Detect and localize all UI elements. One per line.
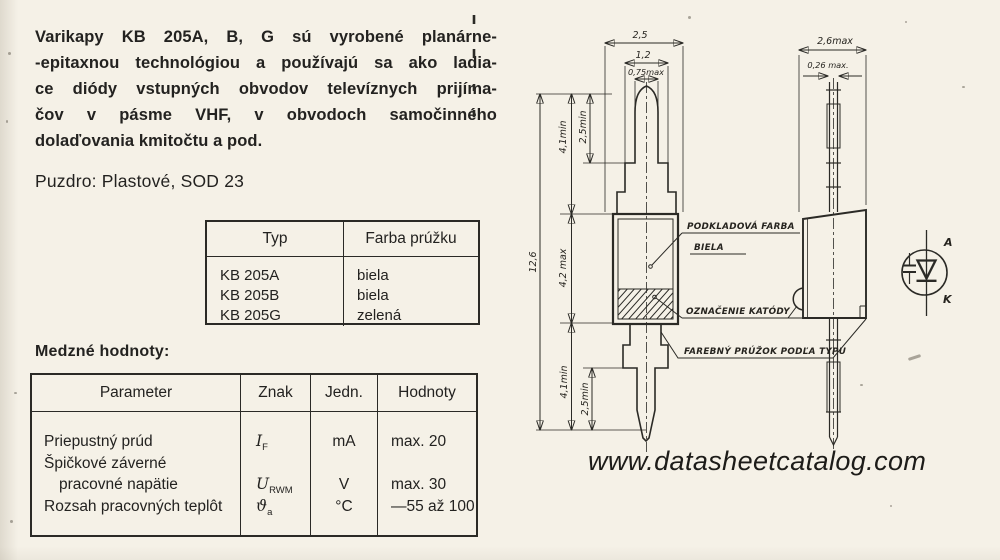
table-cell: mA [311, 431, 377, 453]
table-cell: °C [311, 496, 377, 518]
scan-speck [890, 505, 892, 507]
dim-label: 4,1min [558, 120, 569, 153]
table-cell: biela [344, 266, 478, 286]
dim-label: 4,1min [559, 365, 570, 398]
capacitor-plates [903, 253, 916, 284]
callout-cathode-mark: OZNAČENIE KATÓDY [686, 305, 791, 317]
scan-speck [688, 16, 691, 19]
limits-header-parameter: Parameter [32, 375, 240, 412]
dim-label: 1,2 [635, 50, 650, 61]
scan-speck [6, 120, 8, 123]
table-cell: zelená [344, 306, 478, 326]
table-cell: Rozsah pracovných teplôt [32, 496, 240, 518]
type-table-farba-column: biela biela zelená [343, 257, 478, 326]
symbol-letter: U [256, 475, 269, 493]
scan-speck [905, 21, 907, 23]
scan-speck [14, 392, 17, 394]
limits-parameter-column: Priepustný prúd Špičkové záverné pracovn… [32, 412, 240, 535]
table-cell [241, 453, 310, 475]
symbol-letter: ϑ [256, 497, 267, 515]
limits-header-znak: Znak [240, 375, 310, 412]
limits-table: Parameter Znak Jedn. Hodnoty Priepustný … [30, 373, 478, 537]
table-cell: IF [241, 431, 310, 453]
table-cell: ϑa [241, 496, 310, 518]
table-cell: Špičkové záverné [32, 453, 240, 475]
package-drawings: 2,5 1,2 0,75max 12,6 4,1min 2,5min 4,2 m… [460, 0, 1000, 520]
symbol-subscript: a [267, 507, 272, 518]
scan-speck [8, 52, 11, 55]
cathode-nose [793, 288, 803, 310]
watermark: www.datasheetcatalog.com [588, 446, 926, 477]
intro-line: čov v pásme VHF, v obvodoch samočinného [35, 102, 497, 128]
scan-speck [860, 384, 863, 386]
type-table-typ-column: KB 205A KB 205B KB 205G [207, 257, 343, 326]
table-cell: URWM [241, 474, 310, 496]
table-cell: pracovné napätie [32, 474, 240, 496]
anode-label: A [943, 236, 953, 249]
callout-base-color: PODKLADOVÁ FARBA [687, 220, 795, 232]
cathode-stripe-hatch [591, 286, 700, 322]
dim-label: 4,2 max [558, 248, 569, 287]
table-cell: biela [344, 286, 478, 306]
intro-line: Varikapy KB 205A, B, G sú vyrobené planá… [35, 24, 497, 50]
intro-line: -epitaxnou technológiou a používajú sa a… [35, 50, 497, 76]
dim-label: 2,5 [632, 30, 647, 41]
callout-base-color-2: BIELA [694, 243, 724, 253]
scan-speck [10, 520, 13, 523]
package-line: Puzdro: Plastové, SOD 23 [35, 171, 244, 192]
limits-header-jedn: Jedn. [310, 375, 377, 412]
scan-speck [962, 86, 965, 88]
dim-label: 12,6 [528, 251, 539, 272]
intro-paragraph: Varikapy KB 205A, B, G sú vyrobené planá… [35, 24, 497, 154]
symbol-subscript: RWM [269, 485, 293, 496]
datasheet-page: Varikapy KB 205A, B, G sú vyrobené planá… [0, 0, 1000, 560]
dim-label: 2,6max [817, 36, 853, 47]
varicap-symbol: A K [902, 230, 953, 316]
type-table: Typ Farba prúžku KB 205A KB 205B KB 205G… [205, 220, 480, 325]
limits-heading: Medzné hodnoty: [35, 343, 170, 361]
table-cell: KB 205B [207, 286, 343, 306]
dim-label: 0,26 max. [807, 60, 848, 70]
limits-znak-column: IF URWM ϑa [240, 412, 310, 535]
table-cell [311, 453, 377, 475]
package-side-drawing: 2,6max 0,26 max. [793, 36, 866, 450]
intro-line: dolaďovania kmitočtu a pod. [35, 128, 497, 154]
table-cell: Priepustný prúd [32, 431, 240, 453]
intro-line: ce diódy vstupných obvodov televíznych p… [35, 76, 497, 102]
type-table-header-typ: Typ [207, 222, 343, 257]
dim-label: 2,5min [580, 382, 591, 415]
table-cell: V [311, 474, 377, 496]
cathode-label: K [943, 293, 953, 306]
callout-color-stripe: FAREBNÝ PRÚŽOK PODĽA TYPU [684, 345, 846, 357]
type-table-header-farba: Farba prúžku [343, 222, 478, 257]
limits-jedn-column: mA V °C [310, 412, 377, 535]
table-cell: KB 205A [207, 266, 343, 286]
symbol-subscript: F [262, 442, 268, 453]
dim-label: 0,75max [628, 67, 664, 77]
table-cell: KB 205G [207, 306, 343, 326]
dim-label: 2,5min [578, 110, 589, 143]
